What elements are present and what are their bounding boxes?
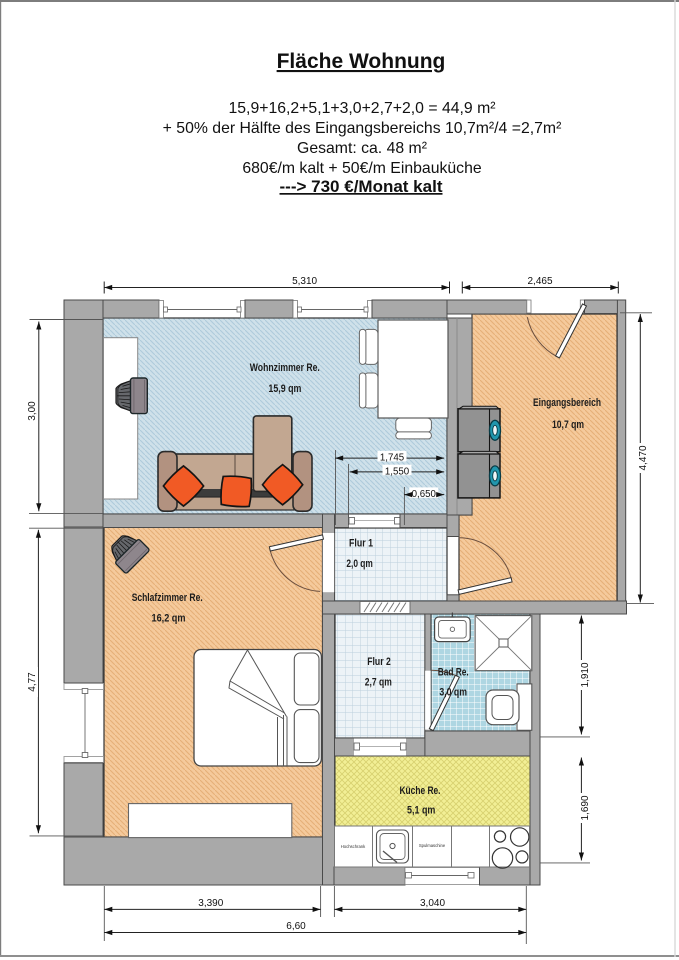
svg-text:2,7 qm: 2,7 qm [365,676,392,688]
svg-text:3,390: 3,390 [198,898,223,909]
svg-text:15,9 qm: 15,9 qm [268,383,301,395]
svg-text:1,745: 1,745 [380,453,404,464]
svg-text:6,60: 6,60 [286,921,306,932]
svg-text:680€/m kalt + 50€/m Einbauküch: 680€/m kalt + 50€/m Einbauküche [242,160,482,177]
svg-text:0,650: 0,650 [412,489,437,500]
svg-text:5,1 qm: 5,1 qm [407,805,435,817]
svg-text:Bad Re.: Bad Re. [438,667,469,679]
svg-text:+ 50% der Hälfte des Eingangsb: + 50% der Hälfte des Eingangsbereichs 10… [163,120,562,137]
svg-text:4,77: 4,77 [27,672,38,692]
svg-text:3,040: 3,040 [420,898,445,909]
svg-text:Wohnzimmer Re.: Wohnzimmer Re. [250,362,320,374]
svg-text:5,310: 5,310 [292,276,317,287]
svg-text:Fläche Wohnung: Fläche Wohnung [277,50,446,73]
svg-text:Küche Re.: Küche Re. [400,785,441,797]
svg-text:Flur 1: Flur 1 [349,538,373,550]
svg-text:Schlafzimmer Re.: Schlafzimmer Re. [132,592,203,604]
svg-text:Gesamt: ca. 48 m²: Gesamt: ca. 48 m² [297,140,427,157]
svg-text:3,0 qm: 3,0 qm [439,687,467,699]
svg-text:---> 730 €/Monat kalt: ---> 730 €/Monat kalt [280,177,443,196]
svg-text:16,2 qm: 16,2 qm [152,613,186,625]
svg-text:Hochschrank: Hochschrank [341,844,366,849]
svg-text:3,00: 3,00 [27,401,38,421]
svg-text:1,910: 1,910 [580,662,591,687]
svg-text:Flur 2: Flur 2 [367,656,391,668]
svg-text:2,0 qm: 2,0 qm [346,558,373,570]
svg-text:4,470: 4,470 [638,445,649,470]
svg-text:15,9+16,2+5,1+3,0+2,7+2,0 = 44: 15,9+16,2+5,1+3,0+2,7+2,0 = 44,9 m² [228,100,495,117]
svg-text:1,550: 1,550 [385,466,410,477]
svg-text:2,465: 2,465 [527,276,552,287]
svg-text:Eingangsbereich: Eingangsbereich [533,397,601,409]
svg-text:Spulmaschine: Spulmaschine [419,843,446,848]
svg-text:1,690: 1,690 [580,795,591,820]
svg-text:10,7 qm: 10,7 qm [552,419,584,431]
